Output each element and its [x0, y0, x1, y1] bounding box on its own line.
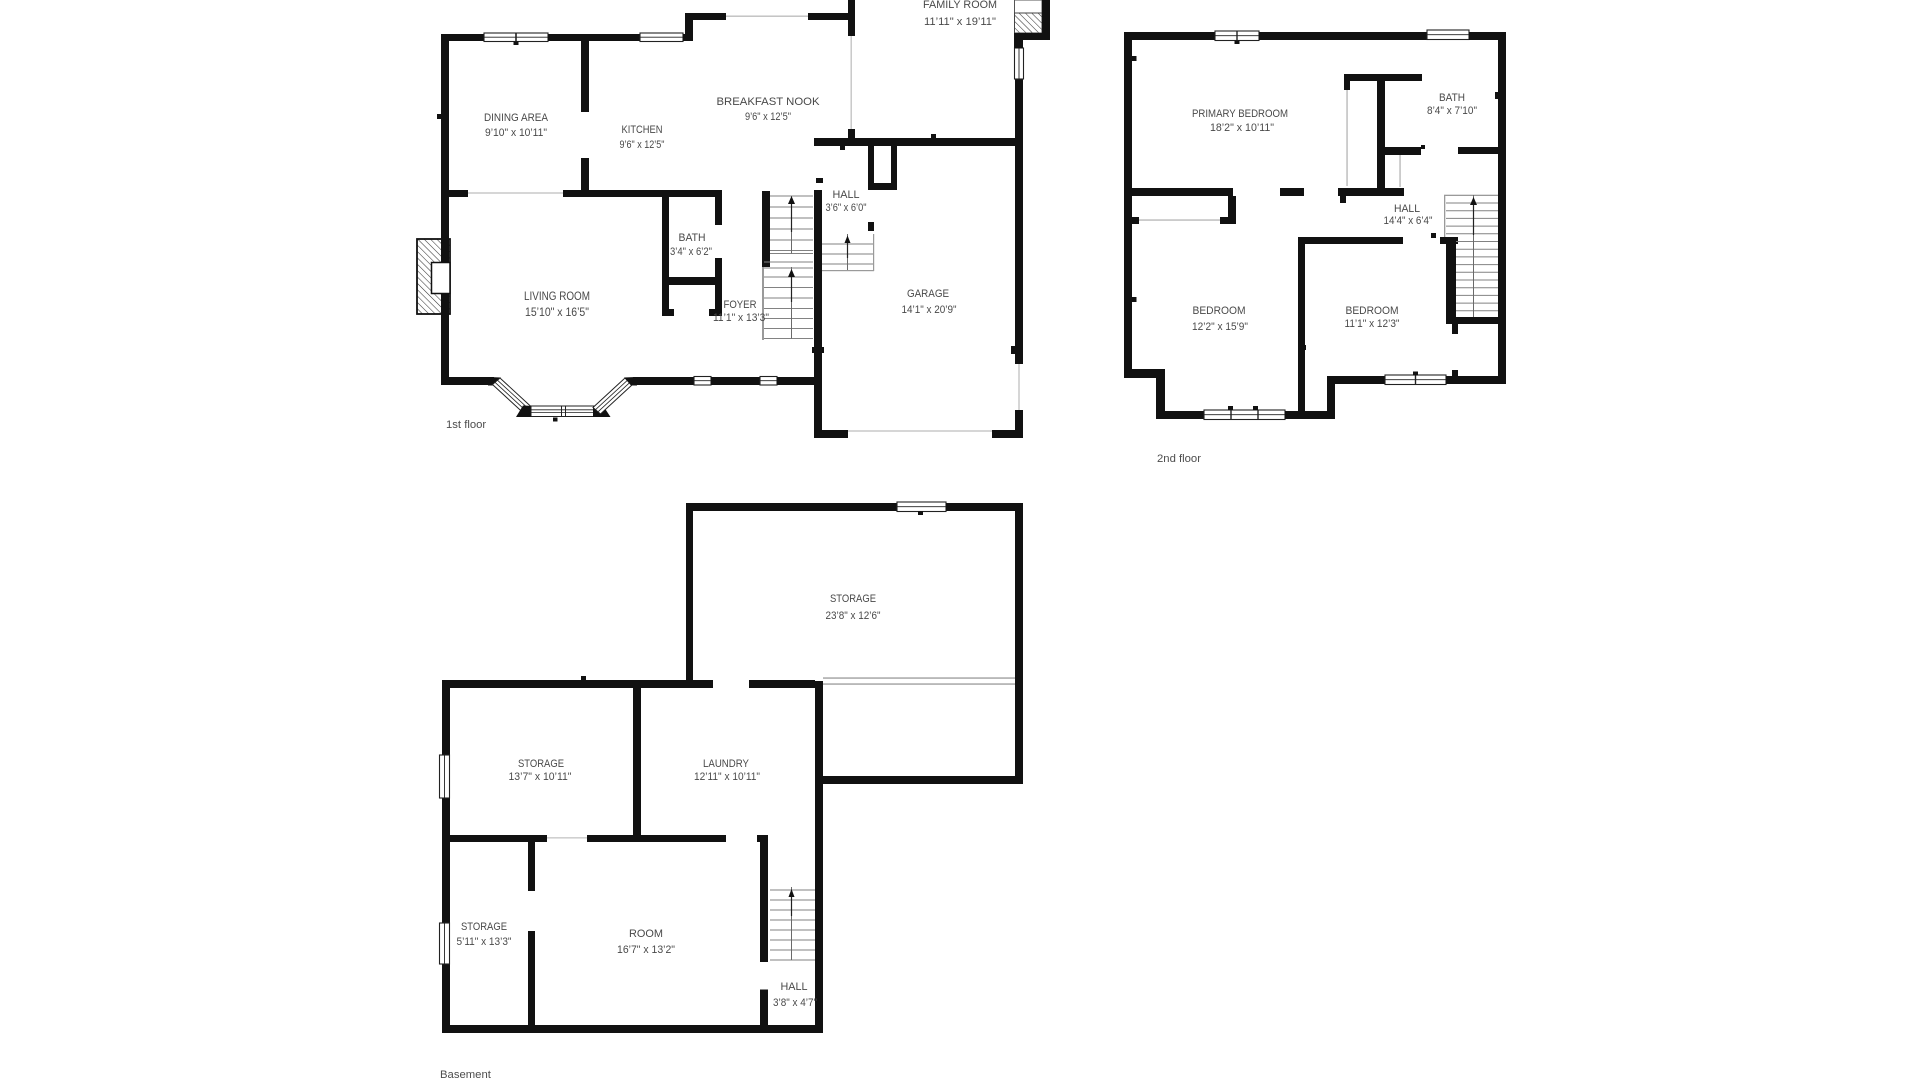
svg-text:LIVING ROOM: LIVING ROOM: [524, 289, 590, 303]
svg-text:13’7" x 10’11": 13’7" x 10’11": [509, 771, 572, 783]
svg-text:ROOM: ROOM: [629, 928, 663, 940]
svg-text:STORAGE: STORAGE: [518, 758, 564, 770]
svg-text:DINING AREA: DINING AREA: [484, 112, 549, 124]
svg-text:FOYER: FOYER: [724, 299, 757, 311]
svg-text:GARAGE: GARAGE: [907, 288, 949, 300]
svg-text:9’6" x 12’5": 9’6" x 12’5": [745, 111, 791, 123]
svg-text:14’1" x 20’9": 14’1" x 20’9": [902, 304, 957, 316]
svg-text:14’4" x 6’4": 14’4" x 6’4": [1384, 215, 1433, 227]
svg-text:STORAGE: STORAGE: [830, 593, 876, 605]
svg-text:16’7" x 13’2": 16’7" x 13’2": [617, 944, 675, 956]
svg-text:11’1" x 13’3": 11’1" x 13’3": [713, 312, 769, 324]
svg-text:KITCHEN: KITCHEN: [622, 124, 663, 136]
svg-text:HALL: HALL: [1394, 203, 1420, 215]
svg-text:HALL: HALL: [833, 189, 860, 201]
svg-text:8’4" x 7’10": 8’4" x 7’10": [1427, 105, 1477, 117]
svg-text:18’2" x 10’11": 18’2" x 10’11": [1210, 122, 1274, 134]
svg-text:BEDROOM: BEDROOM: [1193, 305, 1246, 317]
svg-text:11’1" x 12’3": 11’1" x 12’3": [1345, 318, 1400, 330]
svg-text:11’11" x 19’11": 11’11" x 19’11": [924, 16, 996, 28]
svg-text:9’10" x 10’11": 9’10" x 10’11": [485, 127, 547, 139]
svg-text:LAUNDRY: LAUNDRY: [703, 758, 749, 770]
svg-text:5’11" x 13’3": 5’11" x 13’3": [457, 936, 512, 948]
svg-text:Basement: Basement: [440, 1069, 492, 1080]
svg-text:12’2" x 15’9": 12’2" x 15’9": [1192, 321, 1248, 333]
svg-text:3’4" x 6’2": 3’4" x 6’2": [670, 246, 712, 258]
svg-text:BEDROOM: BEDROOM: [1346, 305, 1399, 317]
svg-text:9’6" x 12’5": 9’6" x 12’5": [620, 139, 665, 151]
svg-text:1st floor: 1st floor: [446, 419, 486, 431]
svg-text:23’8" x 12’6": 23’8" x 12’6": [826, 610, 881, 622]
svg-text:2nd floor: 2nd floor: [1157, 453, 1201, 465]
svg-text:12’11" x 10’11": 12’11" x 10’11": [694, 771, 760, 783]
svg-text:15’10" x 16’5": 15’10" x 16’5": [525, 305, 589, 319]
svg-text:3’8" x 4’7": 3’8" x 4’7": [773, 997, 817, 1009]
svg-text:BATH: BATH: [1439, 92, 1465, 104]
svg-text:3’6" x 6’0": 3’6" x 6’0": [826, 202, 867, 214]
svg-text:BREAKFAST NOOK: BREAKFAST NOOK: [717, 96, 821, 108]
svg-text:PRIMARY BEDROOM: PRIMARY BEDROOM: [1192, 108, 1288, 120]
svg-text:STORAGE: STORAGE: [461, 921, 507, 933]
svg-text:FAMILY ROOM: FAMILY ROOM: [923, 0, 997, 11]
svg-text:HALL: HALL: [781, 981, 808, 993]
svg-text:BATH: BATH: [679, 232, 706, 244]
